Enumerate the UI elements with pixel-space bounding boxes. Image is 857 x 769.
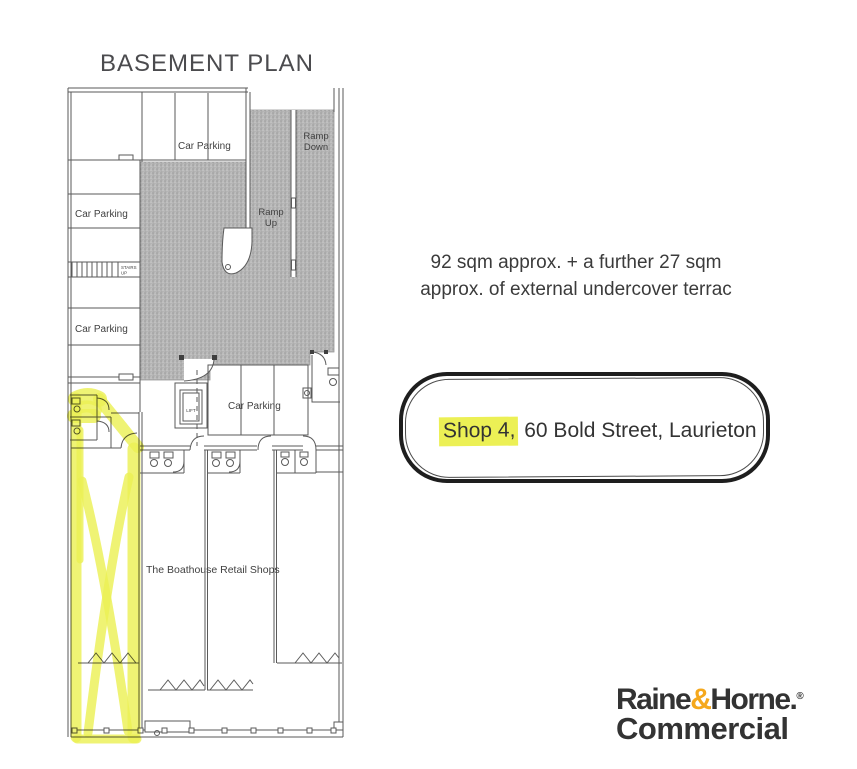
- registered-trademark-icon: ®: [796, 691, 803, 702]
- ramp-up-label-line2: Up: [265, 218, 277, 229]
- car-parking-left-upper-label: Car Parking: [75, 209, 128, 220]
- raine-and-horne-commercial-logo: Raine&Horne.® Commercial: [616, 682, 804, 743]
- logo-line1: Raine&Horne.®: [616, 682, 804, 714]
- address-callout-outline: Shop 4, 60 Bold Street, Laurieton: [399, 372, 770, 483]
- left-parking-bays: Car Parking Car Parking: [68, 160, 140, 412]
- logo-word-commercial: Commercial: [616, 714, 804, 743]
- address-rest: 60 Bold Street, Laurieton: [518, 419, 756, 442]
- car-parking-centre-label: Car Parking: [228, 401, 281, 412]
- ramp-down-label-line2: Down: [304, 142, 328, 153]
- stairs-label-line1: STAIRS: [121, 265, 137, 270]
- shop-number-highlighted: Shop 4,: [439, 417, 519, 447]
- stairs: STAIRS UP: [72, 262, 137, 277]
- car-parking-left-lower-label: Car Parking: [75, 324, 128, 335]
- address-text: Shop 4, 60 Bold Street, Laurieton: [439, 417, 757, 446]
- centre-parking: Car Parking: [197, 365, 308, 446]
- area-note-line2: approx. of external undercover terrac: [398, 276, 754, 303]
- top-parking-bays: Car Parking: [68, 92, 246, 162]
- area-note: 92 sqm approx. + a further 27 sqm approx…: [398, 249, 754, 303]
- retail-shops-label: The Boathouse Retail Shops: [146, 564, 280, 576]
- stairs-label-line2: UP: [121, 271, 127, 276]
- area-note-line1: 92 sqm approx. + a further 27 sqm: [398, 249, 754, 276]
- car-parking-top-label: Car Parking: [178, 141, 231, 152]
- shop4-highlighter-mark: [74, 396, 138, 739]
- ramp-down-label-line1: Ramp: [303, 131, 328, 142]
- lift-label: LIFT: [186, 408, 196, 413]
- ramp-up-label-line1: Ramp: [258, 207, 283, 218]
